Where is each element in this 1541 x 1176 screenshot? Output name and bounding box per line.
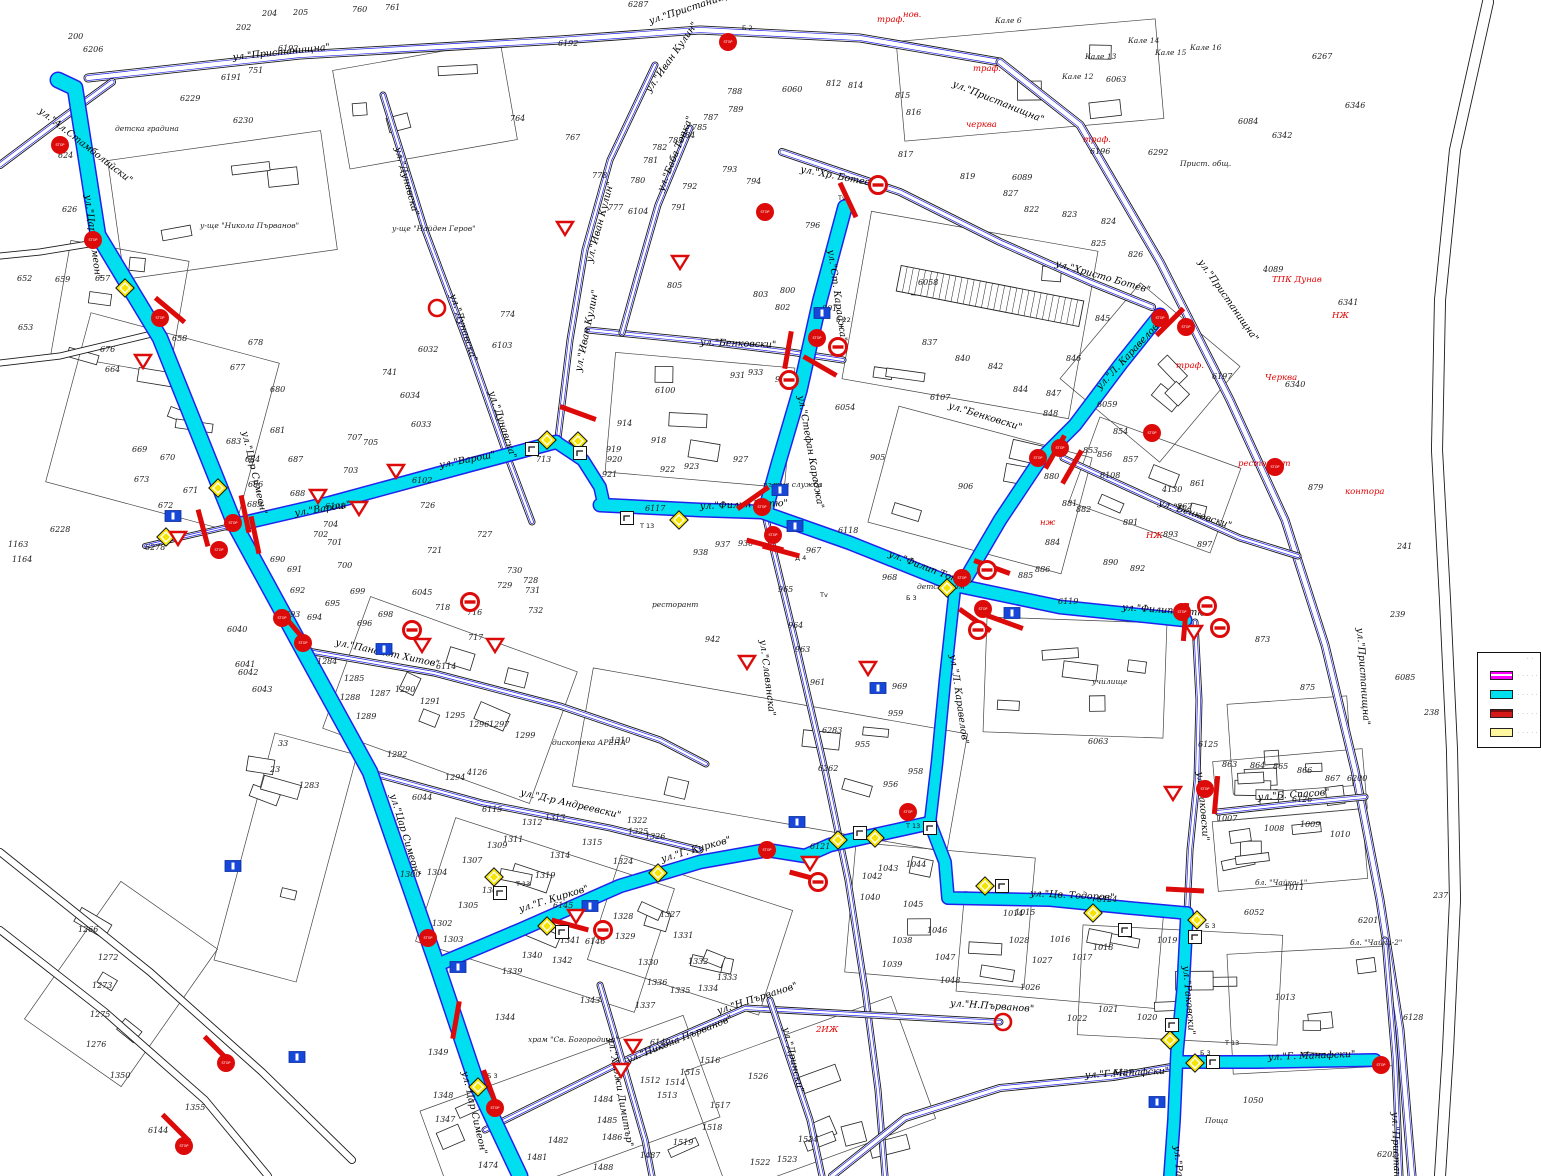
parcel-number: 844 (1013, 385, 1028, 394)
parcel-number: 816 (906, 108, 921, 117)
parcel-number: 687 (288, 455, 304, 464)
building (352, 103, 367, 116)
parcel-number: 1482 (548, 1136, 568, 1145)
parcel-number: 1299 (515, 731, 535, 740)
building (280, 888, 297, 900)
sign-code: Т 13 (905, 822, 920, 830)
map-viewport[interactable]: 2002022042056206619261926191622962306246… (0, 0, 1541, 1176)
parcel-number: 1314 (550, 851, 570, 860)
parcel-number: 1009 (1300, 820, 1320, 829)
parcel-number: 1488 (593, 1163, 613, 1172)
parcel-number: 701 (327, 538, 342, 547)
parcel-number: 4130 (1161, 485, 1182, 494)
stop-sign-text: STOP (1148, 431, 1157, 435)
parcel-number: 717 (468, 633, 484, 642)
building (129, 257, 146, 272)
parcel-number: 696 (357, 619, 372, 628)
parcel-number: 825 (1091, 239, 1106, 248)
parcel-number: 938 (693, 548, 708, 557)
building (1303, 1021, 1321, 1031)
parcel-number: 1335 (670, 986, 690, 995)
no-entry-bar (873, 183, 884, 186)
parcel-number: 6045 (412, 588, 432, 597)
building (1042, 648, 1079, 660)
parcel-number: 6063 (1106, 75, 1126, 84)
parcel-number: 6228 (50, 525, 70, 534)
yield-sign-icon (557, 222, 573, 235)
parcel-number: 864 (1250, 761, 1265, 770)
parcel-number: 1512 (640, 1076, 660, 1085)
map-label: Кале 15 (1154, 48, 1187, 57)
sign-code: Б 3 (906, 594, 917, 602)
stop-sign-text: STOP (491, 1106, 500, 1110)
parcel-number: 789 (728, 105, 743, 114)
parcel-number: 767 (565, 133, 581, 142)
parcel-number: 6054 (835, 403, 855, 412)
signpost-bar-icon (762, 544, 800, 559)
parcel-number: 847 (1046, 389, 1062, 398)
parcel-number: 680 (270, 385, 285, 394)
road-blueline (1000, 62, 1412, 1176)
parcel-number: 856 (1097, 450, 1112, 459)
parcel-number: 885 (1018, 571, 1033, 580)
parcel-number: 1272 (98, 953, 118, 962)
no-entry-bar (813, 880, 824, 883)
parcel-number: 863 (1222, 760, 1237, 769)
street-name: ул."Бенковски" (1156, 497, 1233, 531)
parcel-number: 879 (1308, 483, 1323, 492)
road-casing (1000, 62, 1412, 1176)
red-annotation: нов. (903, 10, 921, 20)
map-label: храм "Св. Богородица" (528, 1035, 619, 1044)
parcel-number: 1340 (522, 951, 542, 960)
parcel-number: 6128 (1403, 1013, 1423, 1022)
parcel-number: 673 (134, 475, 149, 484)
parcel-number: 1326 (645, 832, 665, 841)
no-entry-bar (784, 378, 795, 381)
yield-sign-icon (672, 256, 688, 269)
parcel-number: 1291 (420, 697, 440, 706)
info-sign-glyph (383, 646, 386, 653)
parcel-number: 1485 (597, 1116, 617, 1125)
parcel-number: 1018 (1093, 943, 1113, 952)
parcel-number: 6043 (252, 685, 272, 694)
parcel-number: 774 (500, 310, 515, 319)
parcel-number: 6089 (1012, 173, 1032, 182)
parcel-number: 942 (705, 635, 720, 644)
stop-sign-text: STOP (215, 548, 224, 552)
building (892, 503, 922, 522)
parcel-number: 671 (183, 486, 198, 495)
parcel-number: 1039 (882, 960, 902, 969)
parcel-number: 968 (882, 573, 897, 582)
parcel-number: 652 (17, 274, 32, 283)
sign-code: Т 13 (639, 522, 654, 530)
legend-label: · · · · · · (1518, 692, 1541, 697)
building (669, 413, 707, 428)
parcel-number: 6042 (238, 668, 258, 677)
parcel-number: 729 (497, 581, 512, 590)
building (655, 366, 673, 382)
parcel-number: 805 (667, 281, 682, 290)
parcel-number: 721 (427, 546, 442, 555)
building (841, 1122, 867, 1147)
parcel-number: 6192 (558, 39, 578, 48)
parcel-number: 202 (235, 23, 251, 32)
parcel-number: 1007 (1217, 814, 1238, 823)
parcel-number: 918 (651, 436, 666, 445)
parcel-number: 1327 (660, 910, 681, 919)
sign-code: Б 3 (1205, 922, 1216, 930)
parcel-number: 956 (883, 780, 898, 789)
yield-sign-icon (1186, 626, 1202, 639)
parcel-number: 1517 (710, 1101, 731, 1110)
parcel-number: 815 (895, 91, 910, 100)
info-box-sign-icon (1166, 1019, 1179, 1032)
sign-code: Т 13 (515, 880, 530, 888)
parcel-number: 6262 (818, 764, 838, 773)
info-box-sign-icon (574, 447, 587, 460)
info-box-sign-icon (494, 887, 507, 900)
street-name: ул."Славянска" (757, 638, 777, 717)
sign-code: Тv (819, 591, 828, 599)
stop-sign-text: STOP (763, 848, 772, 852)
parcel-number: 6121 (810, 842, 830, 851)
map-label: училище (1091, 677, 1128, 686)
parcel-number: 4126 (466, 768, 487, 777)
parcel-block (24, 881, 217, 1086)
parcel-number: 914 (617, 419, 632, 428)
stop-sign-text: STOP (156, 316, 165, 320)
map-canvas[interactable]: 2002022042056206619261926191622962306246… (0, 0, 1541, 1176)
building (1238, 772, 1264, 784)
parcel-number: 1516 (700, 1056, 720, 1065)
red-annotation: траф. (1176, 361, 1204, 371)
parcel-number: 955 (855, 740, 870, 749)
legend-note: · · (1478, 653, 1540, 666)
parcel-number: 800 (780, 286, 795, 295)
street-name: ул."Н.Първанов" (949, 998, 1035, 1015)
parcel-number: 854 (1113, 427, 1128, 436)
building (1127, 660, 1146, 674)
red-annotation: нж (1040, 518, 1056, 528)
parcel-number: 964 (788, 621, 803, 630)
parcel-number: 676 (100, 345, 115, 354)
parcel-number: 1311 (503, 835, 523, 844)
parcel-number: 1304 (427, 868, 447, 877)
building (1089, 100, 1122, 119)
parcel-number: 702 (313, 530, 328, 539)
sign-code: Б 2 (742, 24, 753, 32)
parcel-number: 893 (1163, 530, 1178, 539)
parcel-number: 822 (1024, 205, 1039, 214)
parcel-number: 1312 (522, 818, 542, 827)
building (419, 709, 440, 727)
parcel-number: 1285 (344, 674, 364, 683)
parcel-number: 6107 (930, 393, 951, 402)
road-fill-inner (1000, 62, 1412, 1176)
stop-sign-text: STOP (1182, 325, 1191, 329)
parcel-number: 6104 (628, 207, 648, 216)
parcel-number: 6201 (1358, 916, 1378, 925)
map-legend: · · · · · · · · ·· · · · · ·· · · · · ··… (1477, 652, 1541, 748)
parcel-number: 1287 (370, 689, 391, 698)
parcel-number: 6058 (918, 278, 938, 287)
no-entry-bar (982, 568, 993, 571)
parcel-number: 6063 (1088, 737, 1108, 746)
signpost-bar-icon (1166, 887, 1204, 894)
stop-sign-text: STOP (180, 1144, 189, 1148)
legend-swatch-cyan (1490, 690, 1513, 699)
parcel-number: 238 (1423, 708, 1439, 717)
parcel-number: 1328 (613, 912, 633, 921)
parcel-number: 1292 (387, 750, 407, 759)
parcel-number: 780 (630, 176, 645, 185)
parcel-number: 6283 (822, 726, 842, 735)
parcel-number: 1329 (615, 932, 635, 941)
parcel-number: 713 (536, 455, 551, 464)
building (997, 700, 1019, 711)
parcel-number: 705 (363, 438, 378, 447)
yield-sign-icon (860, 662, 876, 675)
parcel-number: 1513 (657, 1091, 677, 1100)
road-casing (0, 930, 268, 1176)
parcel-number: 884 (1045, 538, 1060, 547)
info-box-sign-icon (556, 926, 569, 939)
no-entry-bar (973, 628, 984, 631)
parcel-number: 6103 (492, 341, 512, 350)
info-sign-glyph (796, 819, 799, 826)
parcel-number: 1303 (443, 935, 463, 944)
map-label: у-ще "Никола Първанов" (199, 221, 299, 230)
parcel-number: 1017 (1072, 953, 1093, 962)
parcel-number: 1330 (638, 958, 658, 967)
road-fill (1000, 62, 1412, 1176)
info-sign-glyph (821, 310, 824, 317)
legend-label: · · · · · · (1518, 711, 1541, 716)
street-name: ул."Пристанищна" (1195, 257, 1261, 344)
building (688, 440, 720, 462)
legend-item-red: · · · · · · (1478, 704, 1540, 723)
parcel-number: 6084 (1238, 117, 1258, 126)
parcel-number: 1324 (613, 857, 633, 866)
parcel-number: 922 (660, 465, 675, 474)
parcel-number: 33 (278, 739, 288, 748)
parcel-number: 1302 (432, 919, 452, 928)
map-label: Кале 14 (1127, 36, 1160, 45)
stop-sign-text: STOP (222, 1061, 231, 1065)
info-box-sign-icon (1207, 1056, 1220, 1069)
parcel-number: 6100 (655, 386, 675, 395)
street-name: ул."Раковски" (1171, 1144, 1188, 1176)
no-entry-bar (1215, 626, 1226, 629)
parcel-number: 840 (955, 354, 970, 363)
parcel-number: 1522 (750, 1158, 770, 1167)
parcel-number: 1019 (1157, 936, 1177, 945)
parcel-number: 688 (290, 489, 305, 498)
parcel-number: 1046 (927, 926, 947, 935)
parcel-number: 6287 (628, 0, 649, 9)
parcel-number: 6059 (1097, 400, 1117, 409)
parcel-number: 1526 (748, 1072, 768, 1081)
info-sign-glyph (1156, 1099, 1159, 1106)
building (161, 225, 192, 241)
building (88, 292, 111, 306)
parcel-number: 6052 (1244, 908, 1264, 917)
parcel-number: 1349 (428, 1048, 448, 1057)
map-label: Кале 13 (1084, 52, 1117, 61)
parcel-number: 1050 (1243, 1096, 1263, 1105)
map-label: бл. "Чайка-1" (1255, 878, 1307, 887)
parcel-number: 880 (1044, 472, 1059, 481)
parcel-number: 1524 (798, 1135, 818, 1144)
parcel-number: 1307 (462, 856, 483, 865)
parcel-number: 6040 (227, 625, 247, 634)
parcel-number: 1044 (906, 860, 926, 869)
parcel-number: 891 (1123, 518, 1138, 527)
parcel-number: 732 (528, 606, 543, 615)
parcel-number: 6278 (145, 543, 165, 552)
building (842, 778, 873, 797)
parcel-number: 1266 (78, 925, 98, 934)
street-name: ул."Дрински" (780, 1025, 806, 1093)
parcel-number: 1027 (1032, 956, 1053, 965)
parcel-number: 678 (248, 338, 263, 347)
parcel-number: 1487 (640, 1151, 661, 1160)
parcel-number: 1344 (495, 1013, 515, 1022)
yield-sign-icon (568, 910, 584, 923)
parcel-number: 6144 (148, 1126, 168, 1135)
parcel-number: 4089 (1262, 265, 1283, 274)
parcel-number: 882 (1076, 505, 1091, 514)
parcel-number: 707 (347, 433, 363, 442)
parcel-number: 200 (67, 32, 83, 41)
road-blueline (558, 65, 655, 438)
parcel-number: 817 (898, 150, 914, 159)
parcel-number: 846 (1066, 354, 1081, 363)
parcel-number: 1486 (602, 1133, 622, 1142)
legend-label: · · · · · · · (1518, 673, 1541, 678)
parcel-number: 237 (1432, 891, 1449, 900)
parcel-number: 1276 (86, 1040, 106, 1049)
parcel-number: 961 (810, 678, 825, 687)
stop-sign-text: STOP (229, 521, 238, 525)
stop-sign-text: STOP (299, 641, 308, 645)
parcel-number: 1319 (535, 871, 555, 880)
parcel-number: 6196 (1090, 147, 1110, 156)
parcel-number: 730 (507, 566, 522, 575)
no-entry-bar (833, 345, 844, 348)
parcel-number: 845 (1095, 314, 1110, 323)
parcel-number: 718 (435, 603, 450, 612)
parcel-number: 658 (172, 334, 187, 343)
parcel-number: 1275 (90, 1010, 110, 1019)
red-annotation: Черква (1265, 373, 1297, 383)
parcel-number: 1333 (717, 973, 737, 982)
parcel-number: 1020 (1137, 1013, 1157, 1022)
yield-sign-icon (1165, 787, 1181, 800)
parcel-number: 1519 (673, 1138, 693, 1147)
building (438, 65, 478, 76)
parcel-number: 1474 (478, 1161, 498, 1170)
red-annotation: черква (966, 120, 997, 130)
parcel-number: 6230 (233, 116, 253, 125)
parcel-number: 6197 (1212, 372, 1233, 381)
map-label: Кале 16 (1189, 43, 1222, 52)
parcel-number: 670 (160, 453, 175, 462)
parcel-number: 672 (158, 501, 173, 510)
parcel-number: 1008 (1264, 824, 1284, 833)
parcel-number: 6085 (1395, 673, 1415, 682)
parcel-number: 6206 (83, 45, 103, 54)
parcel-number: 1038 (892, 936, 912, 945)
parcel-number: 1350 (110, 1071, 130, 1080)
street-cyan (58, 80, 520, 1176)
parcel-number: 892 (1130, 564, 1145, 573)
parcel-number: 1337 (635, 1001, 656, 1010)
parcel-number: 761 (385, 3, 400, 12)
parcel-number: 865 (1273, 762, 1288, 771)
parcel-number: 6033 (411, 420, 431, 429)
parcel-number: 6044 (412, 793, 432, 802)
parcel-number: 683 (226, 437, 241, 446)
parcel-number: 6200 (1347, 774, 1367, 783)
parcel-number: 857 (1123, 455, 1139, 464)
parcel-number: 692 (290, 586, 305, 595)
parcel-number: 741 (382, 368, 397, 377)
parcel-number: 920 (607, 455, 622, 464)
map-label: Поща (1204, 1116, 1228, 1125)
parcel-number: 751 (248, 66, 263, 75)
parcel-number: 6229 (180, 94, 200, 103)
parcel-number: 1273 (92, 981, 112, 990)
map-label: детска градина (115, 124, 179, 133)
parcel-number: 1297 (489, 720, 510, 729)
parcel-number: 875 (1300, 683, 1315, 692)
parcel-number: 1042 (862, 872, 882, 881)
parcel-number: 241 (1396, 542, 1412, 551)
street-name: ул."Дунавска" (392, 145, 421, 217)
parcel-number: 1022 (1067, 1014, 1087, 1023)
parcel-number: 802 (775, 303, 790, 312)
stop-sign-text: STOP (958, 576, 967, 580)
parcel-number: 6346 (1345, 101, 1365, 110)
parcel-number: 1347 (435, 1115, 456, 1124)
parcel-number: 6119 (1058, 597, 1078, 606)
map-label: Кале 12 (1061, 72, 1094, 81)
stop-sign-text: STOP (1271, 465, 1280, 469)
parcel-block (214, 733, 357, 982)
parcel-number: 814 (848, 81, 863, 90)
parcel-number: 626 (62, 205, 77, 214)
parcel-number: 866 (1297, 766, 1312, 775)
parcel-number: 812 (826, 79, 841, 88)
parcel-number: 6292 (1148, 148, 1168, 157)
parcel-number: 1515 (680, 1068, 700, 1077)
parcel-number: 861 (1190, 479, 1205, 488)
info-sign-glyph (589, 903, 592, 910)
parcel-number: 1336 (647, 978, 667, 987)
road-casing (558, 65, 655, 438)
info-sign-glyph (779, 487, 782, 494)
parcel-number: 785 (692, 123, 707, 132)
red-annotation: траф. (1083, 135, 1111, 145)
parcel-number: 1296 (469, 720, 489, 729)
map-label: дискотека АРЕНА (552, 738, 626, 747)
parcel-number: 793 (722, 165, 737, 174)
parcel-number: 703 (343, 466, 358, 475)
parcel-number: 691 (287, 565, 302, 574)
